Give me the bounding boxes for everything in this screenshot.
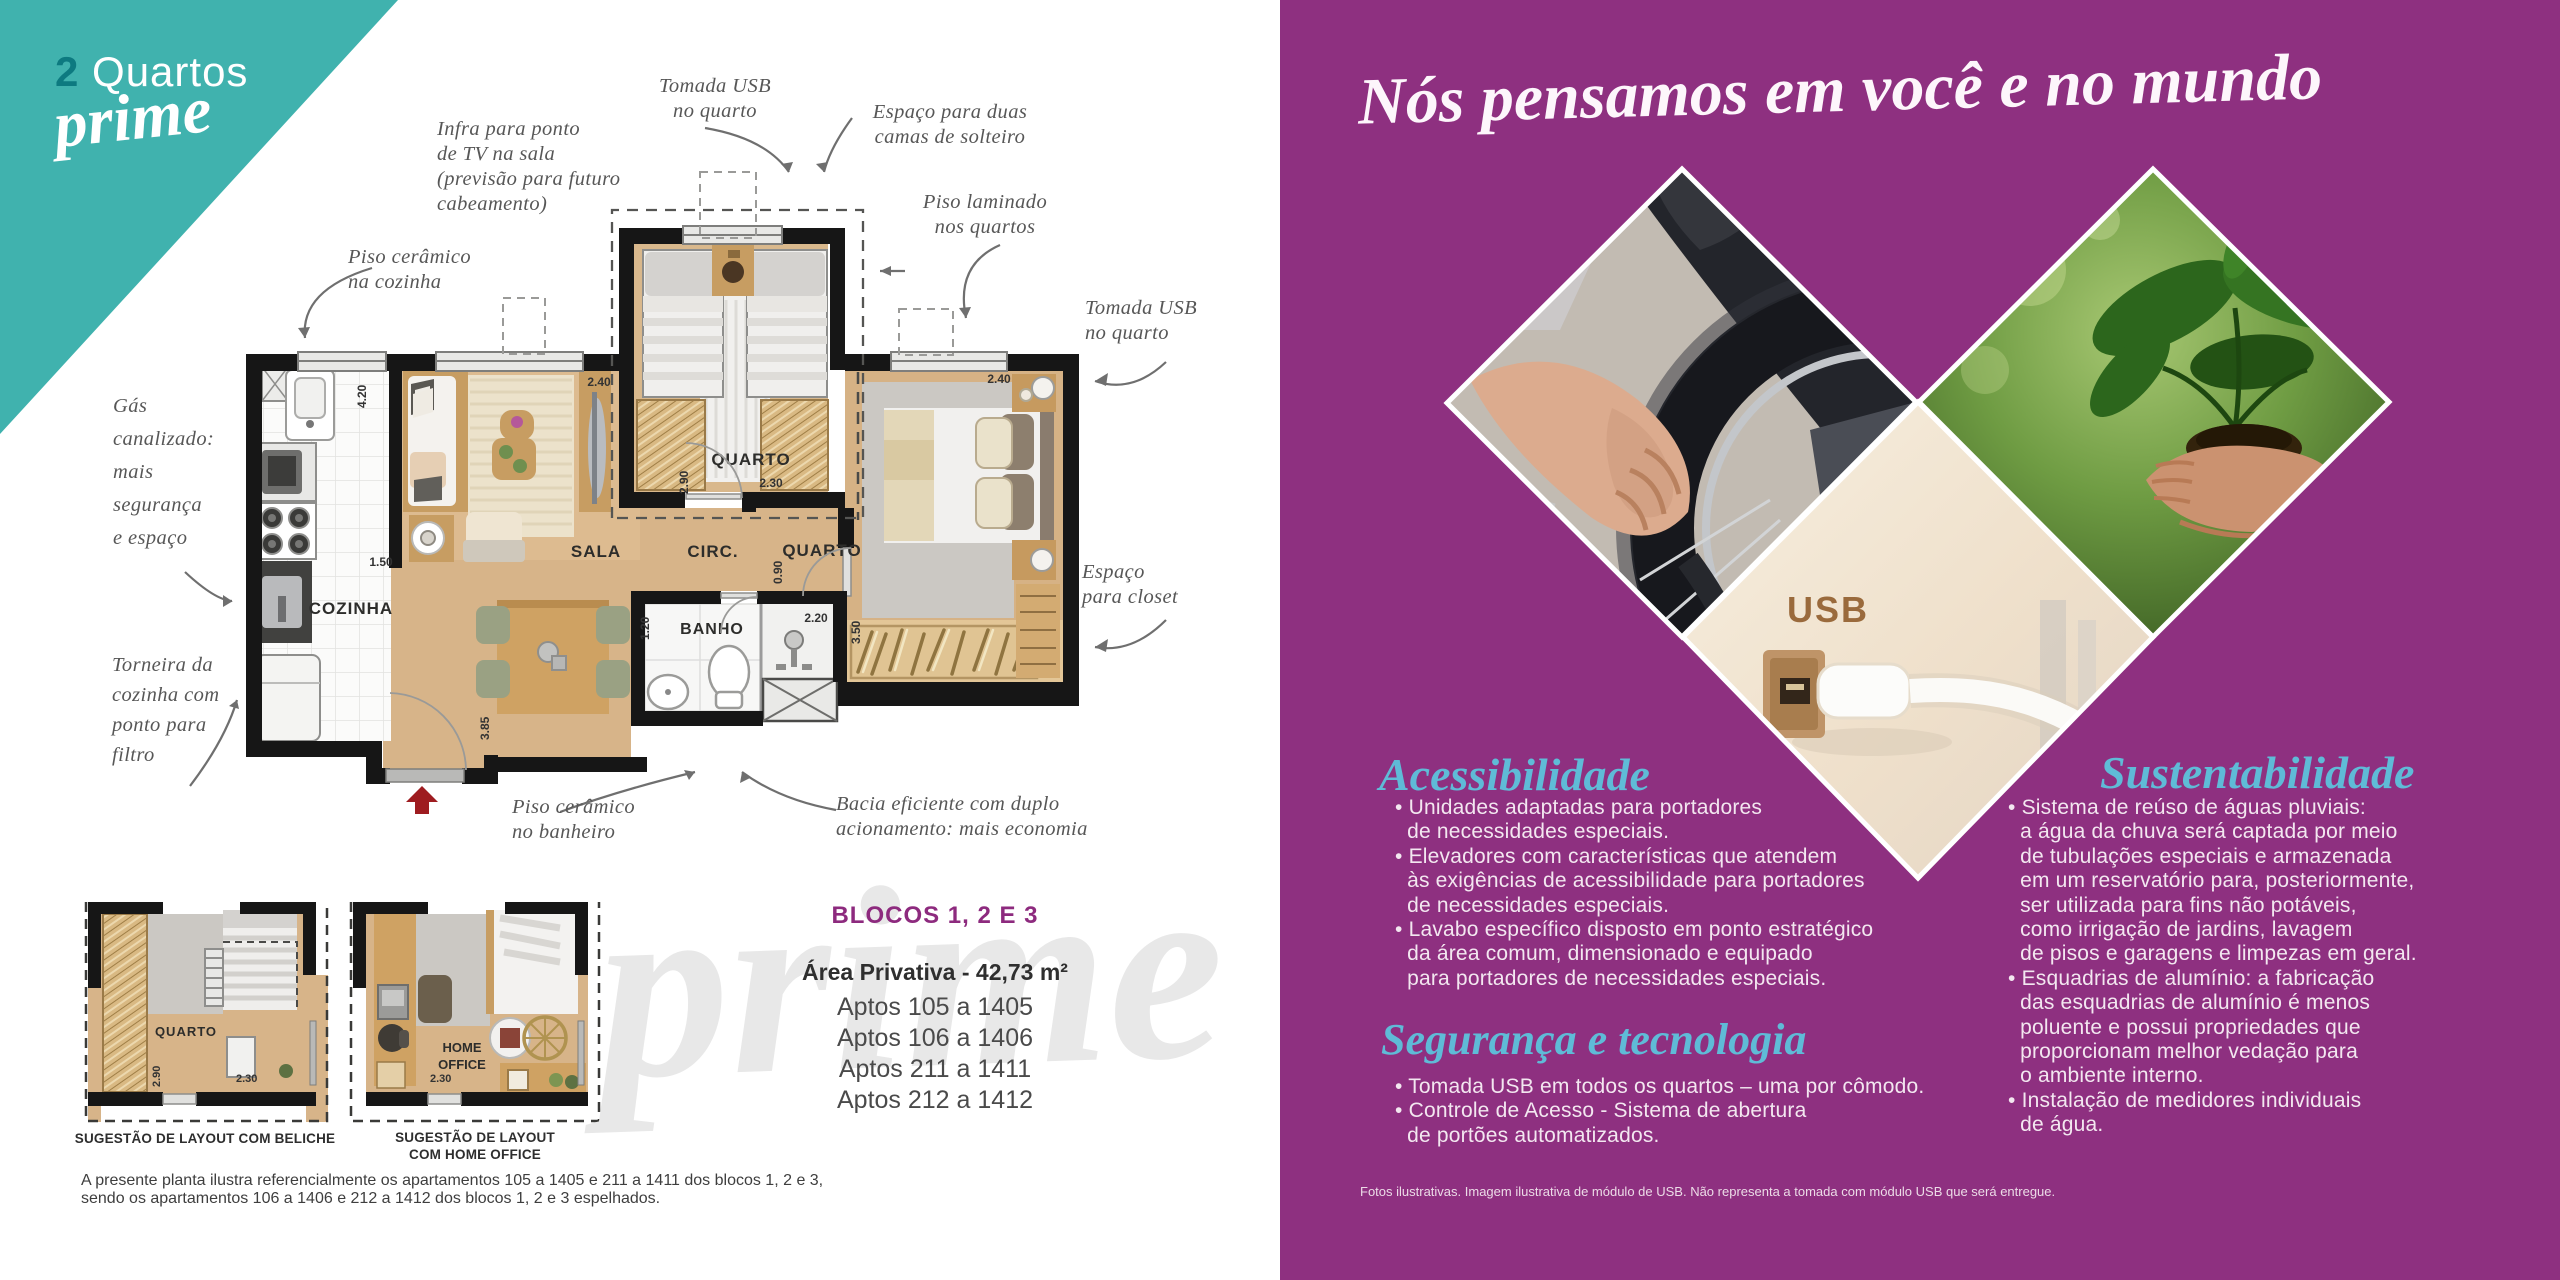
svg-text:2.30: 2.30: [759, 476, 783, 490]
svg-text:BANHO: BANHO: [680, 621, 744, 638]
svg-text:2.40: 2.40: [987, 372, 1011, 386]
svg-text:2.90: 2.90: [151, 1066, 163, 1087]
svg-text:SALA: SALA: [571, 542, 621, 561]
svg-text:2.20: 2.20: [804, 611, 828, 625]
svg-text:OFFICE: OFFICE: [438, 1057, 486, 1072]
svg-text:QUARTO: QUARTO: [155, 1024, 217, 1039]
svg-text:2.40: 2.40: [587, 375, 611, 389]
svg-text:3.50: 3.50: [849, 620, 863, 644]
svg-text:4.20: 4.20: [355, 384, 369, 408]
svg-text:COZINHA: COZINHA: [309, 599, 393, 618]
svg-text:2.30: 2.30: [236, 1073, 257, 1085]
svg-text:2.90: 2.90: [677, 470, 691, 494]
svg-text:1.20: 1.20: [638, 616, 652, 640]
svg-text:QUARTO: QUARTO: [711, 450, 790, 469]
svg-text:2.30: 2.30: [430, 1073, 451, 1085]
svg-text:HOME: HOME: [443, 1040, 482, 1055]
svg-text:3.85: 3.85: [478, 716, 492, 740]
svg-text:1.50: 1.50: [369, 555, 393, 569]
svg-text:CIRC.: CIRC.: [687, 542, 738, 561]
svg-text:USB: USB: [1787, 589, 1869, 630]
svg-text:0.90: 0.90: [771, 560, 785, 584]
